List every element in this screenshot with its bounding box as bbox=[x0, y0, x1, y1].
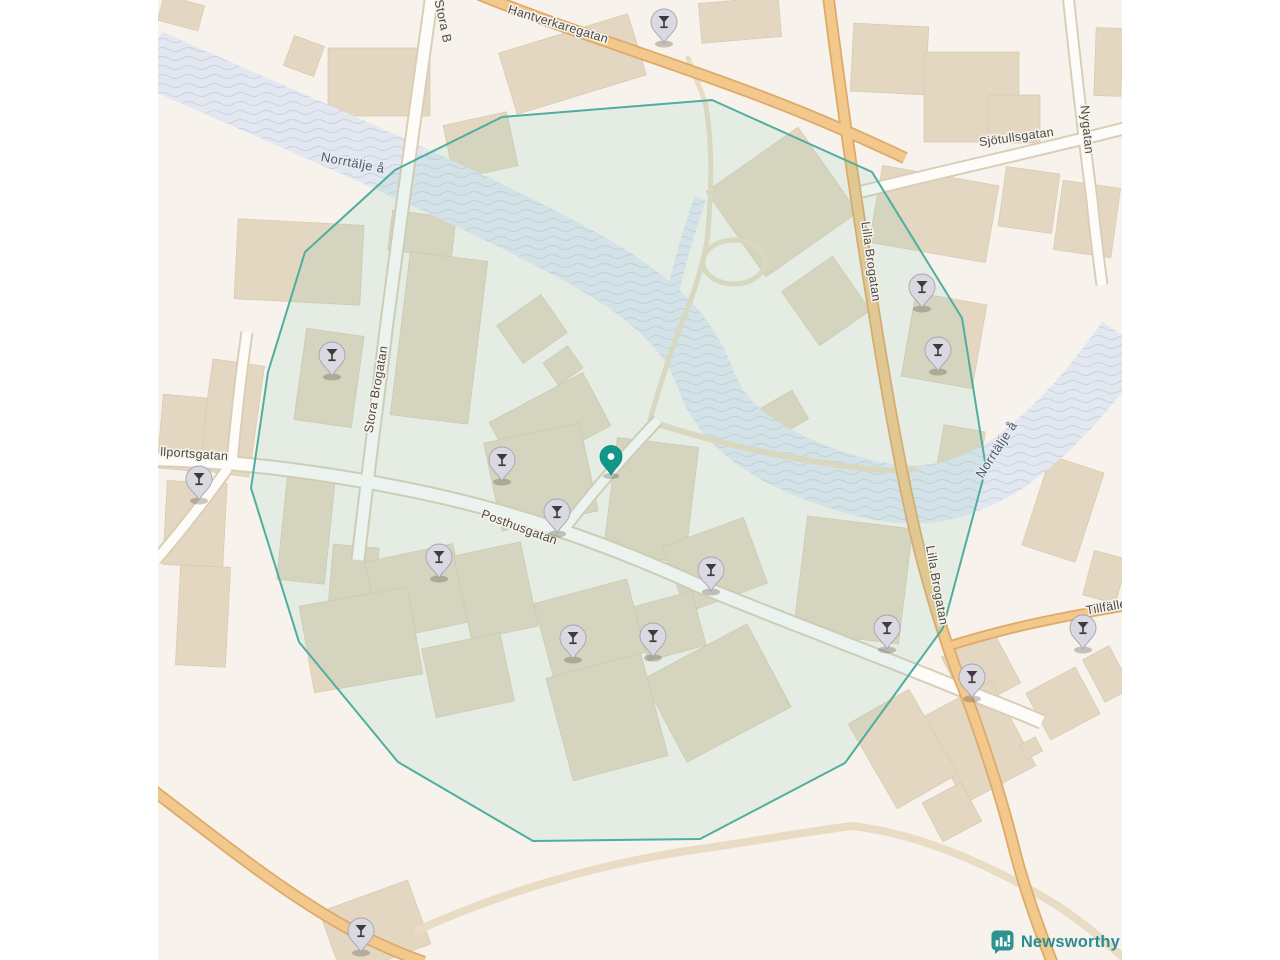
building bbox=[998, 167, 1060, 234]
building bbox=[850, 23, 928, 95]
newsworthy-logo[interactable]: Newsworthy bbox=[991, 930, 1120, 954]
newsworthy-wordmark: Newsworthy bbox=[1021, 933, 1120, 952]
map-screenshot: HantverkaregatanStora BNorrtälje åStora … bbox=[0, 0, 1280, 960]
newsworthy-icon bbox=[991, 930, 1014, 954]
map-svg: HantverkaregatanStora BNorrtälje åStora … bbox=[158, 0, 1122, 960]
map-canvas[interactable]: HantverkaregatanStora BNorrtälje åStora … bbox=[158, 0, 1122, 960]
building bbox=[175, 565, 230, 667]
building bbox=[1094, 28, 1122, 97]
building bbox=[698, 0, 781, 43]
